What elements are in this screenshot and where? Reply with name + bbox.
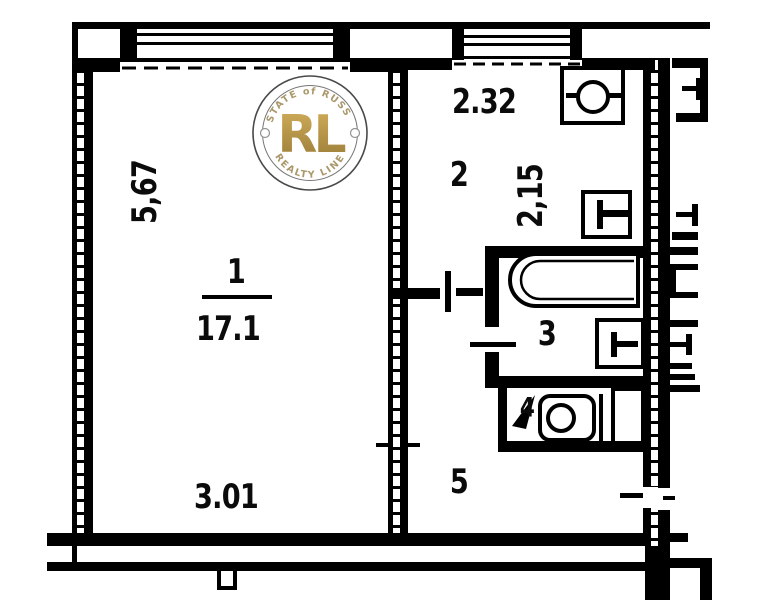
floorplan: ESTATE of RUSSIA REALTY LINE RL 5,67 1 1… (0, 0, 773, 600)
stove-icon (562, 68, 623, 123)
kitchen-number: 2 (450, 155, 468, 195)
watermark-monogram: RL (277, 105, 345, 165)
partition-wall (376, 58, 420, 545)
bath-sink-icon (597, 320, 643, 367)
bathtub-icon (510, 254, 638, 306)
hallway-number: 5 (450, 462, 468, 502)
kitchen-sink-icon (583, 192, 630, 237)
toilet-icon (540, 389, 643, 443)
bathroom-number: 3 (538, 314, 556, 354)
living-room-number: 1 (227, 252, 245, 292)
wc-number: 4 (520, 393, 534, 424)
duct-shaft (613, 389, 643, 443)
living-room-width-dim: 3.01 (194, 477, 258, 517)
stamp-dot-right (351, 129, 360, 138)
stamp-dot-left (261, 129, 270, 138)
living-room-area: 17.1 (196, 309, 260, 349)
entry-door-leaf (620, 493, 643, 498)
floorplan-drawing: ESTATE of RUSSIA REALTY LINE RL (0, 0, 773, 600)
living-room-height-dim: 5,67 (125, 160, 165, 224)
room1-number-underline (202, 295, 272, 299)
kitchen-height-dim: 2,15 (511, 164, 551, 228)
kitchen-width-dim: 2.32 (452, 82, 516, 122)
bottom-notch (217, 568, 237, 590)
